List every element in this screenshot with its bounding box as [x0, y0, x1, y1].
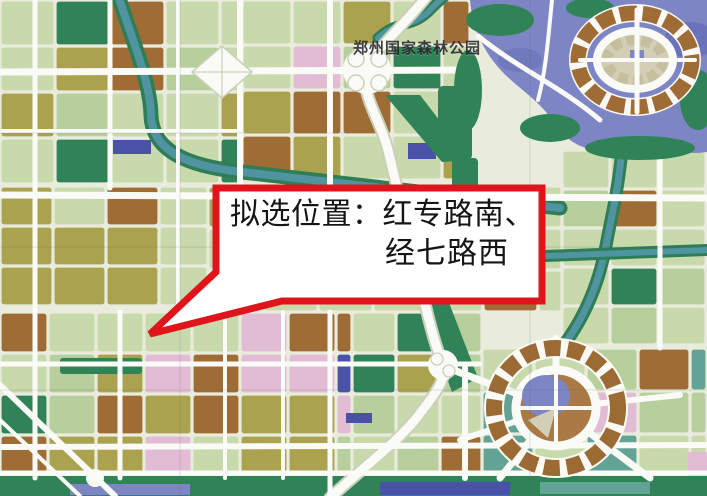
callout-line-1: 拟选位置：红专路南、 [220, 194, 539, 235]
callout-line-2: 经七路西 [220, 235, 539, 272]
callout-text: 拟选位置：红专路南、 经七路西 [220, 194, 539, 272]
location-callout: 拟选位置：红专路南、 经七路西 [0, 0, 707, 496]
planning-map-screenshot: 郑州国家森林公园 拟选位置：红专路南、 经七路西 [0, 0, 707, 496]
